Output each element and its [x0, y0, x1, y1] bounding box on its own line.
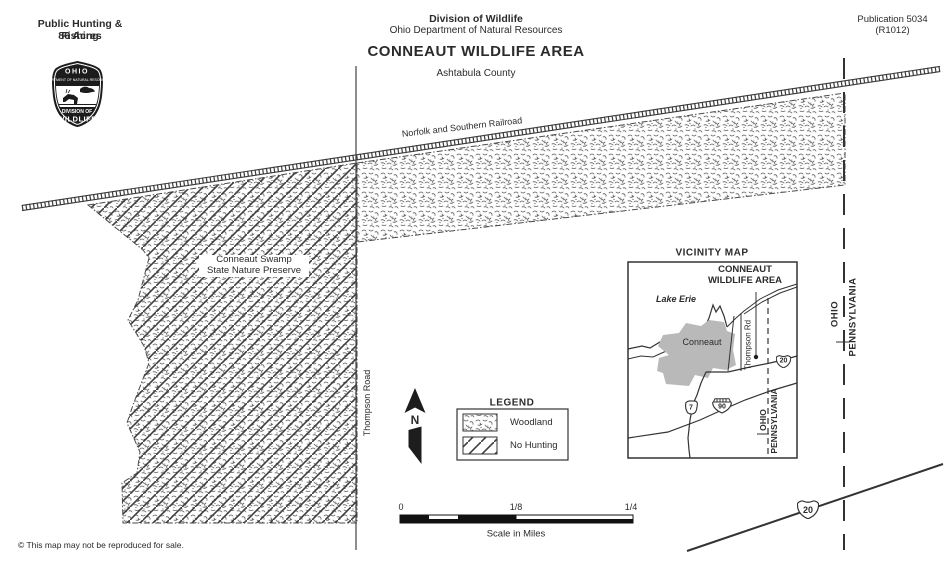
map-sheet: OHIO DEPARTMENT OF NATURAL RESOURCES DIV… — [0, 0, 950, 570]
scale-tick-0: 0 — [398, 502, 403, 512]
vicinity-area-label-line1: CONNEAUT — [695, 264, 795, 275]
preserve-label-line2: State Nature Preserve — [202, 266, 306, 277]
org-name: Division of Wildlife — [326, 13, 626, 25]
vicinity-us-20-number: 20 — [780, 358, 788, 365]
preserve-label: Conneaut Swamp State Nature Preserve — [199, 255, 309, 277]
us-route-20-number: 20 — [803, 505, 813, 515]
map-canvas — [0, 0, 950, 570]
vicinity-i-90-number: 90 — [718, 404, 726, 411]
vicinity-oh-7-number: 7 — [689, 405, 693, 412]
acreage-label: 86 Acres — [20, 30, 140, 42]
legend-item-no-hunting: No Hunting — [510, 440, 558, 451]
lake-erie-label: Lake Erie — [656, 294, 696, 304]
state-label-pennsylvania: PENNSYLVANIA — [848, 277, 859, 356]
badge-state-label: OHIO — [65, 69, 89, 76]
state-label-ohio: OHIO — [830, 301, 841, 327]
north-arrow-label: N — [411, 413, 420, 427]
vicinity-ohio-label: OHIO — [758, 409, 768, 431]
county-label: Ashtabula County — [326, 68, 626, 79]
vicinity-map-title: VICINITY MAP — [675, 248, 748, 259]
vicinity-pennsylvania-label: PENNSYLVANIA — [769, 388, 779, 453]
scale-bar — [400, 515, 633, 523]
vicinity-thompson-rd-label: Thompson Rd — [744, 320, 753, 370]
scale-caption: Scale in Miles — [487, 529, 546, 540]
copyright-notice: © This map may not be reproduced for sal… — [18, 540, 184, 550]
legend-item-woodland: Woodland — [510, 417, 553, 428]
scale-tick-end: 1/4 — [625, 502, 638, 512]
org-department: Ohio Department of Natural Resources — [326, 25, 626, 36]
site-dot — [754, 355, 758, 359]
publication-number: Publication 5034 — [845, 14, 940, 25]
nature-preserve-area — [88, 163, 357, 523]
badge-arc-text: DEPARTMENT OF NATURAL RESOURCES — [42, 78, 112, 82]
thompson-road-label: Thompson Road — [362, 367, 372, 440]
legend-title: LEGEND — [490, 398, 535, 409]
scale-tick-mid: 1/8 — [510, 502, 523, 512]
page-title: CONNEAUT WILDLIFE AREA — [326, 43, 626, 60]
publication-revision: (R1012) — [845, 25, 940, 36]
woodland-band — [357, 93, 845, 242]
badge-division-line2: WILDLIFE — [57, 115, 96, 124]
vicinity-area-label-line2: WILDLIFE AREA — [695, 275, 795, 286]
conneaut-city-label: Conneaut — [682, 337, 721, 347]
